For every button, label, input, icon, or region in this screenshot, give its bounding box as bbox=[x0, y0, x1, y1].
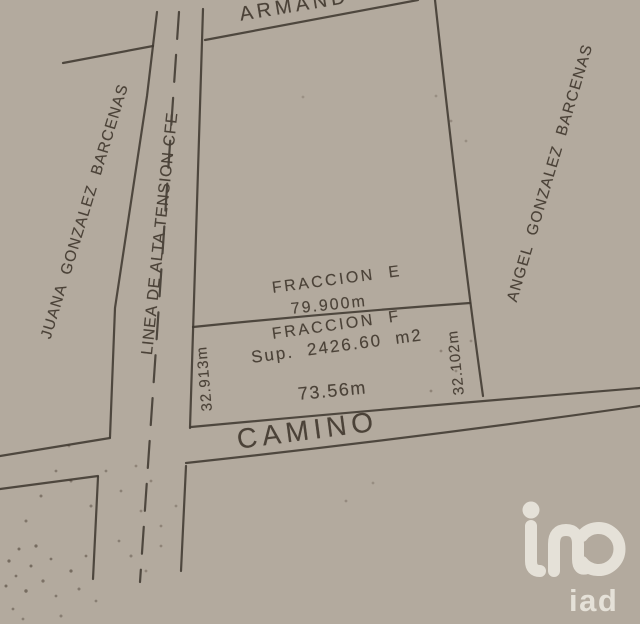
iad-logo-mark: iad bbox=[512, 494, 634, 624]
iad-logo-dot-icon bbox=[523, 502, 540, 519]
road-north-line-west bbox=[0, 438, 110, 456]
road-south-line-west bbox=[0, 476, 98, 489]
powerline-corridor-west-line-lower bbox=[93, 477, 98, 579]
survey-plan-photo: ARMAND JUANA GONZALEZ BARCENAS LINEA DE … bbox=[0, 0, 640, 624]
iad-watermark: iad bbox=[512, 494, 634, 624]
iad-logo-i-stem-icon bbox=[531, 526, 540, 571]
iad-logo-ring-icon bbox=[582, 528, 619, 570]
powerline-corridor-west-line-upper bbox=[110, 12, 157, 437]
paper-speckles bbox=[0, 0, 2, 2]
powerline-corridor-east-line-lower bbox=[181, 466, 186, 571]
boundary-top-west-segment bbox=[63, 46, 153, 63]
iad-logo-text: iad bbox=[569, 583, 618, 618]
